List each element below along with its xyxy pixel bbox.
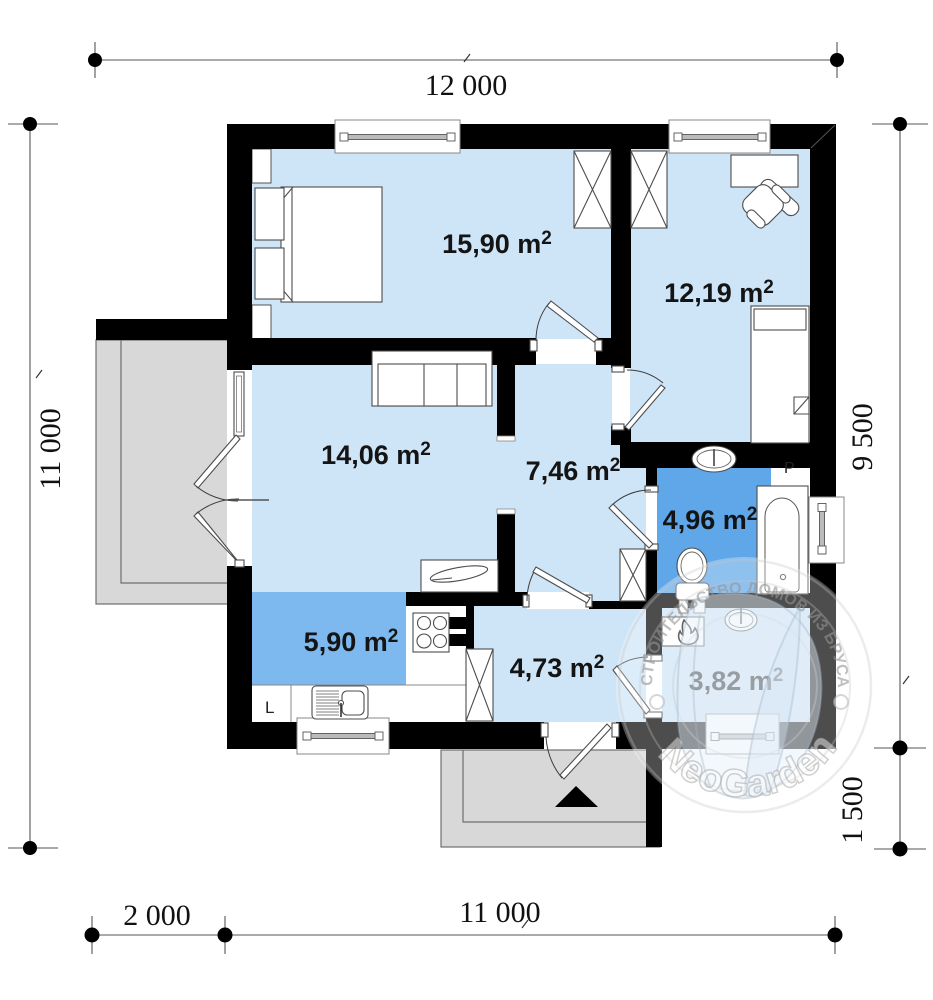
svg-text:P: P [784,460,795,477]
svg-text:7,46 m2: 7,46 m2 [526,455,621,486]
svg-text:12,19 m2: 12,19 m2 [664,277,774,308]
svg-text:11 000: 11 000 [459,896,540,929]
svg-text:4,96 m2: 4,96 m2 [663,504,758,535]
svg-text:2 000: 2 000 [123,899,191,932]
svg-text:11 000: 11 000 [34,408,67,489]
svg-text:14,06 m2: 14,06 m2 [321,439,431,470]
svg-text:4,73 m2: 4,73 m2 [510,652,605,683]
svg-text:9 500: 9 500 [846,403,879,471]
svg-text:15,90 m2: 15,90 m2 [442,228,552,259]
svg-text:5,90 m2: 5,90 m2 [304,626,399,657]
svg-text:L: L [265,698,274,717]
svg-text:12 000: 12 000 [425,69,508,102]
svg-text:1 500: 1 500 [836,776,869,844]
